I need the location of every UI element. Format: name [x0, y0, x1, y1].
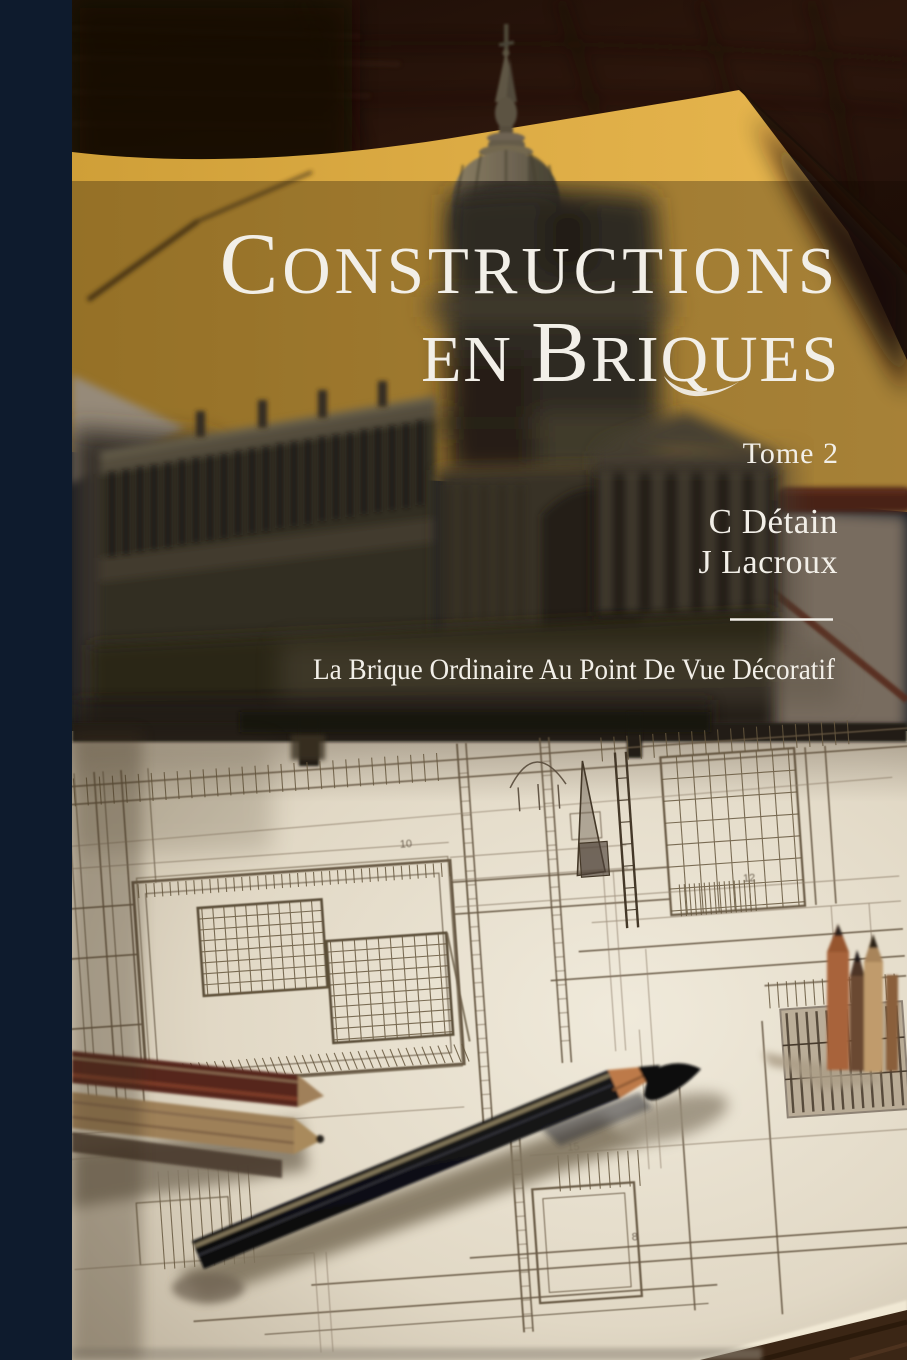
svg-text:J Lacroux: J Lacroux: [698, 544, 838, 581]
svg-text:Tome 2: Tome 2: [743, 437, 839, 470]
svg-text:8: 8: [631, 1231, 638, 1243]
svg-text:10: 10: [399, 838, 412, 851]
svg-text:La Brique Ordinaire Au Point D: La Brique Ordinaire Au Point De Vue Déco…: [313, 653, 835, 686]
svg-text:C Détain: C Détain: [709, 502, 838, 541]
